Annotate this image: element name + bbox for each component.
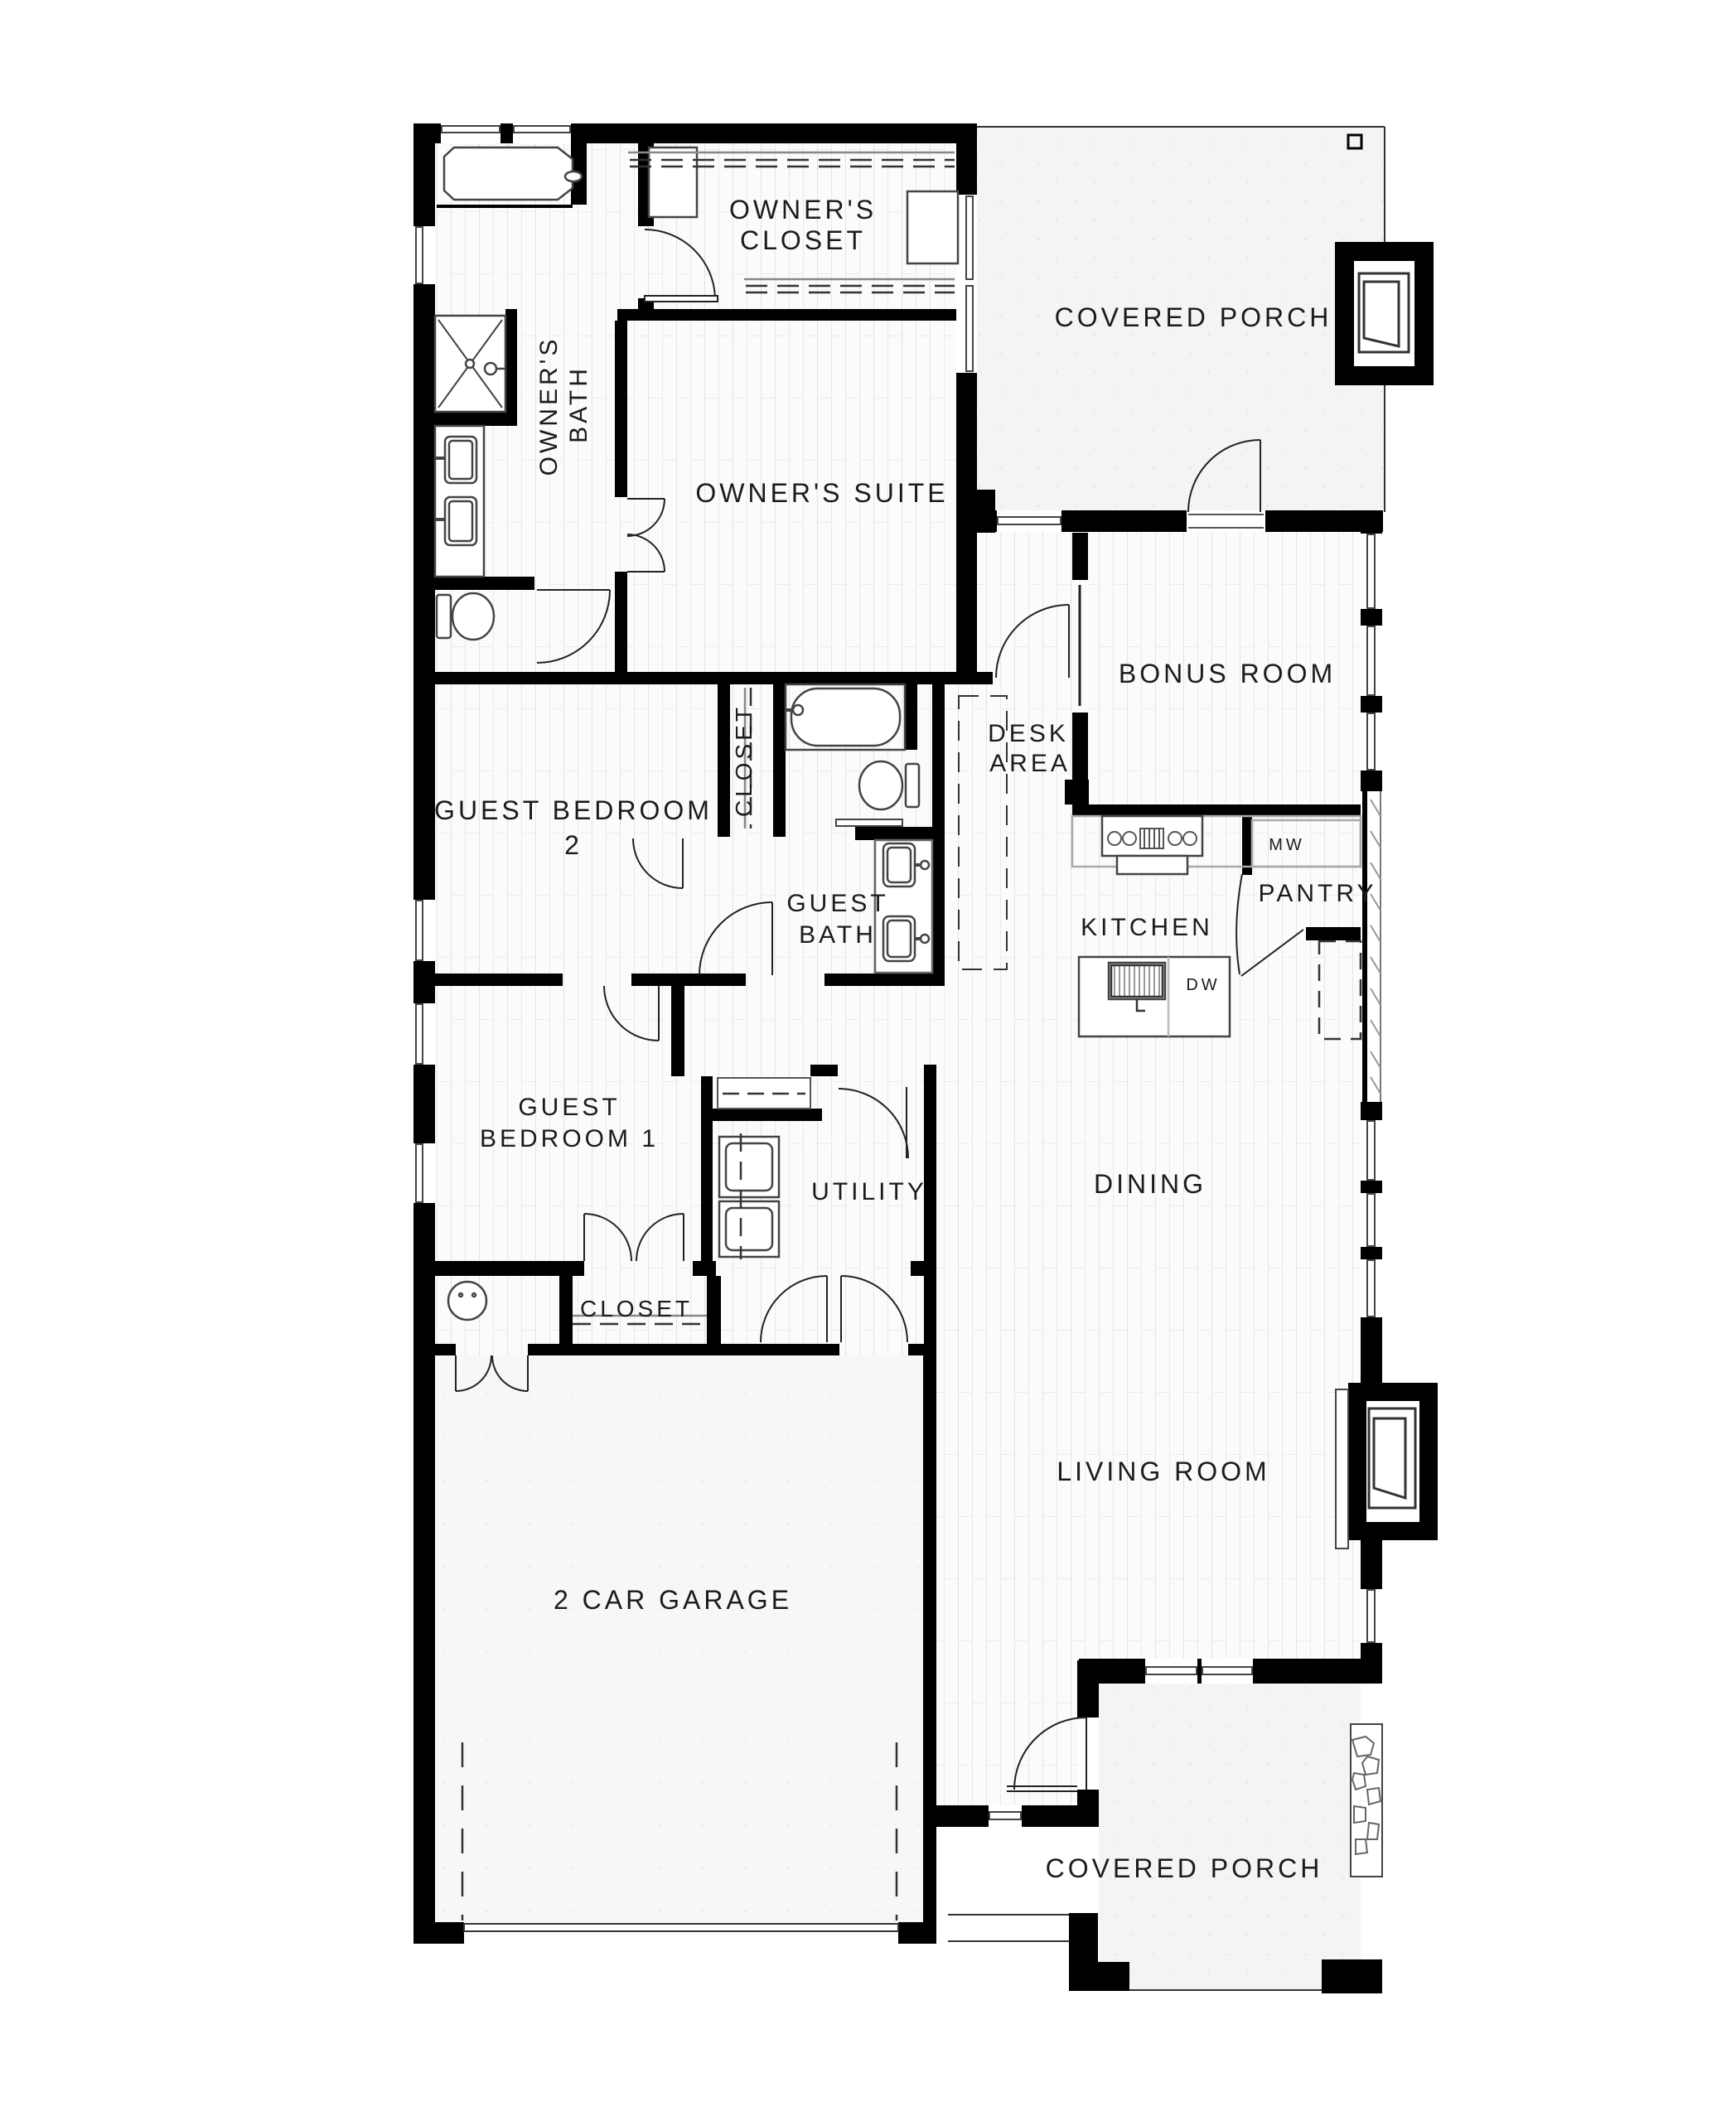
svg-text:2 CAR GARAGE: 2 CAR GARAGE [554, 1585, 792, 1615]
svg-text:UTILITY: UTILITY [811, 1178, 927, 1205]
svg-text:DESK: DESK [988, 720, 1069, 747]
svg-text:COVERED PORCH: COVERED PORCH [1055, 302, 1332, 332]
svg-text:2: 2 [564, 830, 583, 860]
svg-text:DINING: DINING [1094, 1169, 1206, 1199]
svg-text:GUEST: GUEST [518, 1094, 620, 1121]
svg-text:AREA: AREA [989, 750, 1071, 777]
svg-text:GUEST BEDROOM: GUEST BEDROOM [434, 795, 713, 825]
svg-text:MW: MW [1269, 836, 1305, 854]
svg-text:CLOSET: CLOSET [580, 1296, 693, 1321]
svg-text:BATH: BATH [565, 365, 592, 443]
svg-text:COVERED PORCH: COVERED PORCH [1046, 1853, 1323, 1883]
svg-text:BEDROOM 1: BEDROOM 1 [480, 1125, 659, 1152]
svg-text:OWNER'S SUITE: OWNER'S SUITE [695, 478, 948, 508]
svg-text:GUEST: GUEST [786, 890, 888, 917]
svg-text:DW: DW [1186, 976, 1220, 994]
svg-text:OWNER'S: OWNER'S [729, 195, 877, 225]
svg-text:BONUS ROOM: BONUS ROOM [1119, 659, 1336, 688]
svg-text:CLOSET: CLOSET [740, 225, 866, 255]
svg-text:KITCHEN: KITCHEN [1081, 914, 1213, 941]
svg-text:CLOSET: CLOSET [731, 704, 757, 817]
svg-text:LIVING ROOM: LIVING ROOM [1057, 1457, 1269, 1486]
svg-text:OWNER'S: OWNER'S [535, 336, 563, 476]
svg-text:BATH: BATH [799, 921, 877, 949]
svg-text:PANTRY: PANTRY [1259, 880, 1377, 907]
